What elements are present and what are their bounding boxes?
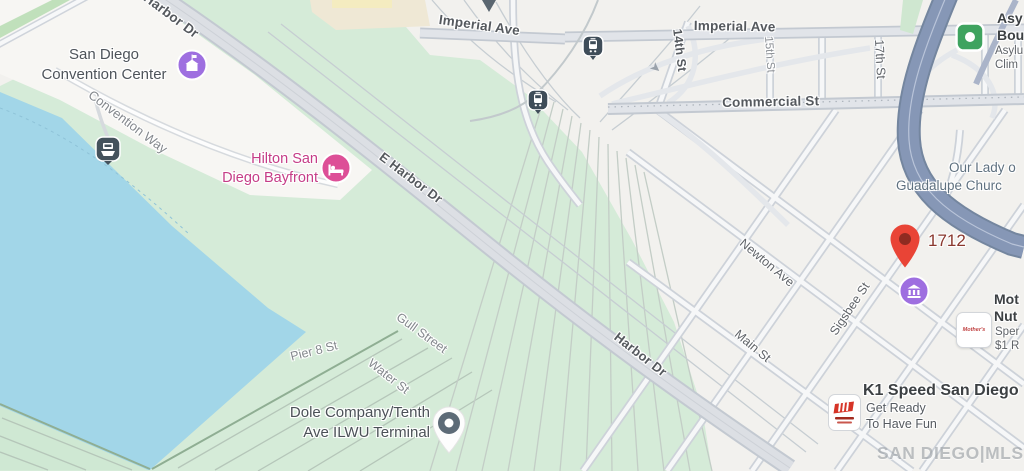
k1-speed-logo-icon[interactable] xyxy=(828,394,861,431)
poi-label-church-line2[interactable]: Guadalupe Churc xyxy=(896,178,1002,194)
poi-label-dole-terminal[interactable]: Dole Company/Tenth Ave ILWU Terminal xyxy=(240,403,430,443)
poi-label-k1-sub1: Get Ready xyxy=(866,401,926,415)
poi-label-mothers-1[interactable]: Mot xyxy=(994,291,1019,307)
poi-label-k1-title[interactable]: K1 Speed San Diego xyxy=(863,382,1019,400)
poi-label-asylum-4: Clim xyxy=(995,59,1018,72)
poi-label-mothers-3: Sper xyxy=(995,326,1019,339)
poi-label-convention-center[interactable]: San Diego Convention Center xyxy=(28,45,180,85)
climbing-gym-icon[interactable] xyxy=(955,22,985,52)
poi-label-asylum-3: Asylu xyxy=(995,45,1023,58)
pin-tip-icon xyxy=(481,0,497,13)
dole-terminal-pin-icon[interactable] xyxy=(429,405,469,455)
poi-label-church-line1[interactable]: Our Lady o xyxy=(949,160,1016,176)
poi-label-mothers-4: $1 R xyxy=(995,340,1019,353)
street-label-commercial-st: Commercial St xyxy=(722,93,819,110)
ferry-terminal-icon[interactable] xyxy=(95,136,121,165)
poi-label-k1-sub2: To Have Fun xyxy=(866,417,937,431)
map-canvas[interactable]: Harbor Dr E Harbor Dr Harbor Dr Imperial… xyxy=(0,0,1024,471)
poi-label-mothers-2[interactable]: Nut xyxy=(994,308,1017,324)
watermark-san-diego-mls: SAN DIEGO|MLS xyxy=(877,443,1024,463)
tram-station-icon[interactable] xyxy=(527,89,549,114)
monument-icon[interactable] xyxy=(898,275,930,307)
red-map-pin-icon[interactable] xyxy=(887,223,923,269)
address-label-1712: 1712 xyxy=(928,231,966,251)
poi-label-hilton[interactable]: Hilton San Diego Bayfront xyxy=(200,150,318,188)
poi-label-asylum-2[interactable]: Bou xyxy=(997,27,1024,43)
mothers-logo-icon[interactable]: Mother's xyxy=(956,312,992,348)
hotel-icon[interactable] xyxy=(320,152,352,184)
street-label-17th-st: 17th St xyxy=(872,39,888,79)
poi-label-asylum-1[interactable]: Asy xyxy=(997,10,1023,26)
street-label-15th-st: 15th St xyxy=(761,36,777,73)
street-label-imperial-ave-e: Imperial Ave xyxy=(694,18,776,35)
convention-center-icon[interactable] xyxy=(176,49,208,81)
mothers-logo-text: Mother's xyxy=(963,327,986,333)
tram-station-icon[interactable] xyxy=(582,35,604,60)
